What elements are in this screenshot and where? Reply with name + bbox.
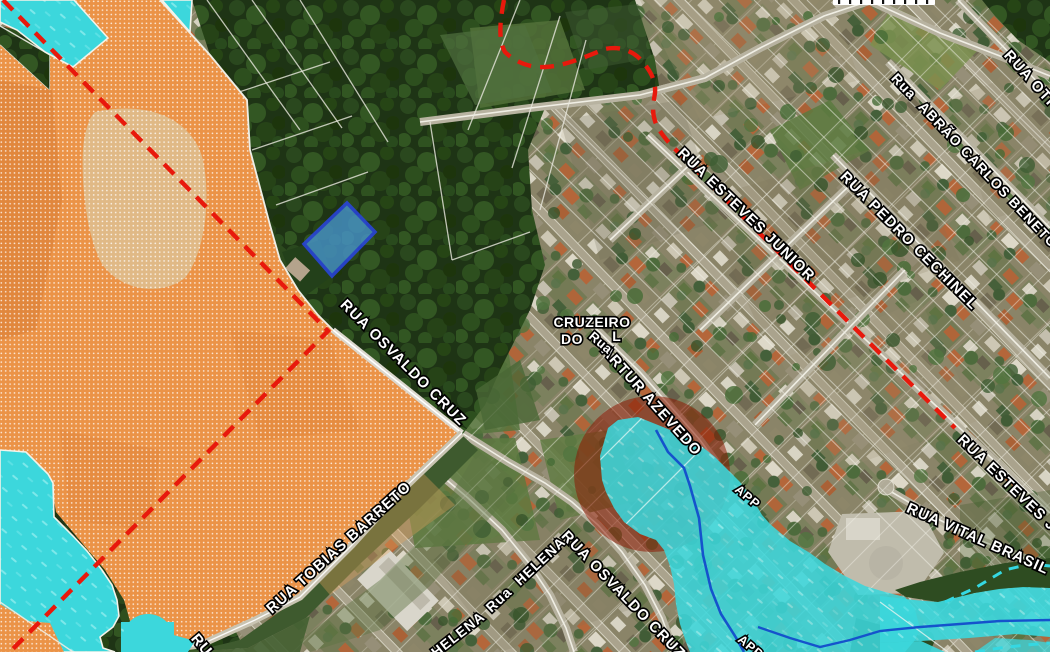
svg-text:DO: DO [561, 331, 583, 347]
svg-text:L: L [612, 328, 622, 344]
